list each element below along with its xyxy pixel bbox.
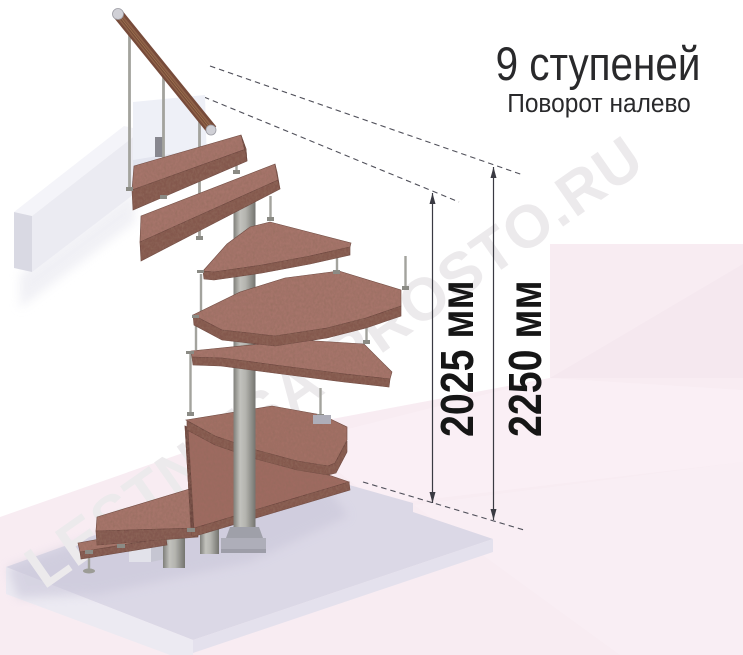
svg-text:2250 мм: 2250 мм xyxy=(500,280,552,437)
svg-text:9 ступеней: 9 ступеней xyxy=(496,38,701,91)
svg-text:Поворот налево: Поворот налево xyxy=(507,90,691,119)
svg-text:2025 мм: 2025 мм xyxy=(432,280,484,437)
